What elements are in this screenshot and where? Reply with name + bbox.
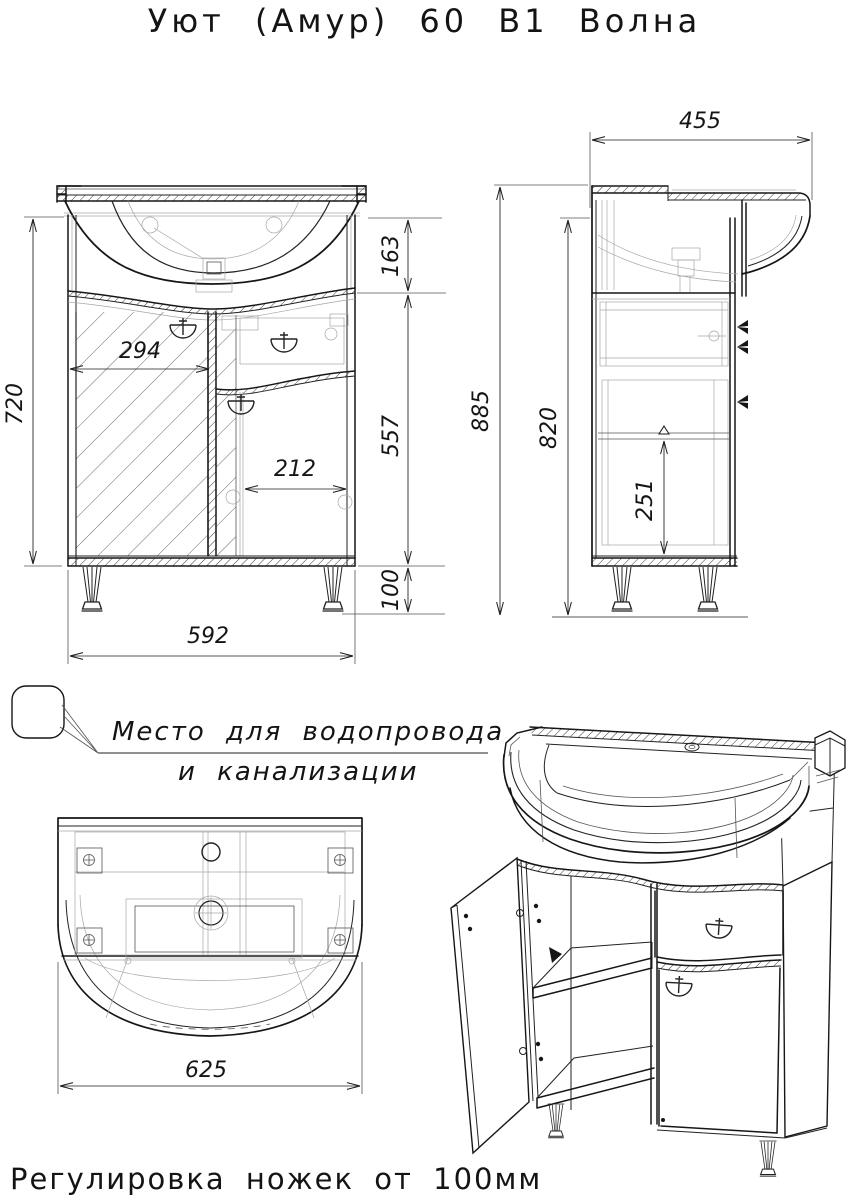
dim-sink-zone-height: 163 [379,235,404,277]
plumbing-note-line2: и канализации [178,757,419,787]
dim-left-door-width: 294 [119,339,161,364]
side-front-leg [697,566,719,611]
legs-adjustment-note: Регулировка ножек от 100мм [10,1162,542,1196]
dim-cabinet-width: 592 [187,624,229,649]
hatch-legend-icon [12,686,64,738]
side-view: 251 455 885 820 [469,109,812,617]
drawing-sheet: 720 163 557 100 294 212 592 [0,0,849,1200]
iso-left-leg [548,1104,565,1138]
detail-arrow-icon [549,947,562,963]
front-right-leg [322,566,344,611]
side-back-leg [611,566,633,611]
technical-drawing: 720 163 557 100 294 212 592 [0,0,849,1200]
page-title: Уют (Амур) 60 В1 Волна [148,2,702,40]
iso-door-handle-icon [665,975,692,996]
top-view: 625 [58,818,362,1094]
drawer-handle-icon [271,332,297,352]
dim-total-height: 885 [469,390,494,432]
iso-right-leg [759,1141,776,1176]
plumbing-note-line1: Место для водопровода [112,717,504,747]
hinge-plates [77,848,353,953]
dim-leg-height: 100 [379,569,404,611]
front-view: 720 163 557 100 294 212 592 [3,186,446,664]
dim-cabinet-height: 557 [379,415,404,457]
iso-drawer-handle-icon [705,917,732,939]
front-left-leg [81,566,103,611]
dim-depth: 455 [679,109,721,134]
dim-sink-width: 625 [185,1058,227,1083]
hinge-marks [737,320,748,409]
dim-right-door-width: 212 [274,457,316,482]
dim-overall-height: 720 [3,383,28,425]
isometric-view [451,721,845,1176]
dim-body-height: 820 [537,407,562,449]
dim-shelf-clearance: 251 [633,479,658,521]
